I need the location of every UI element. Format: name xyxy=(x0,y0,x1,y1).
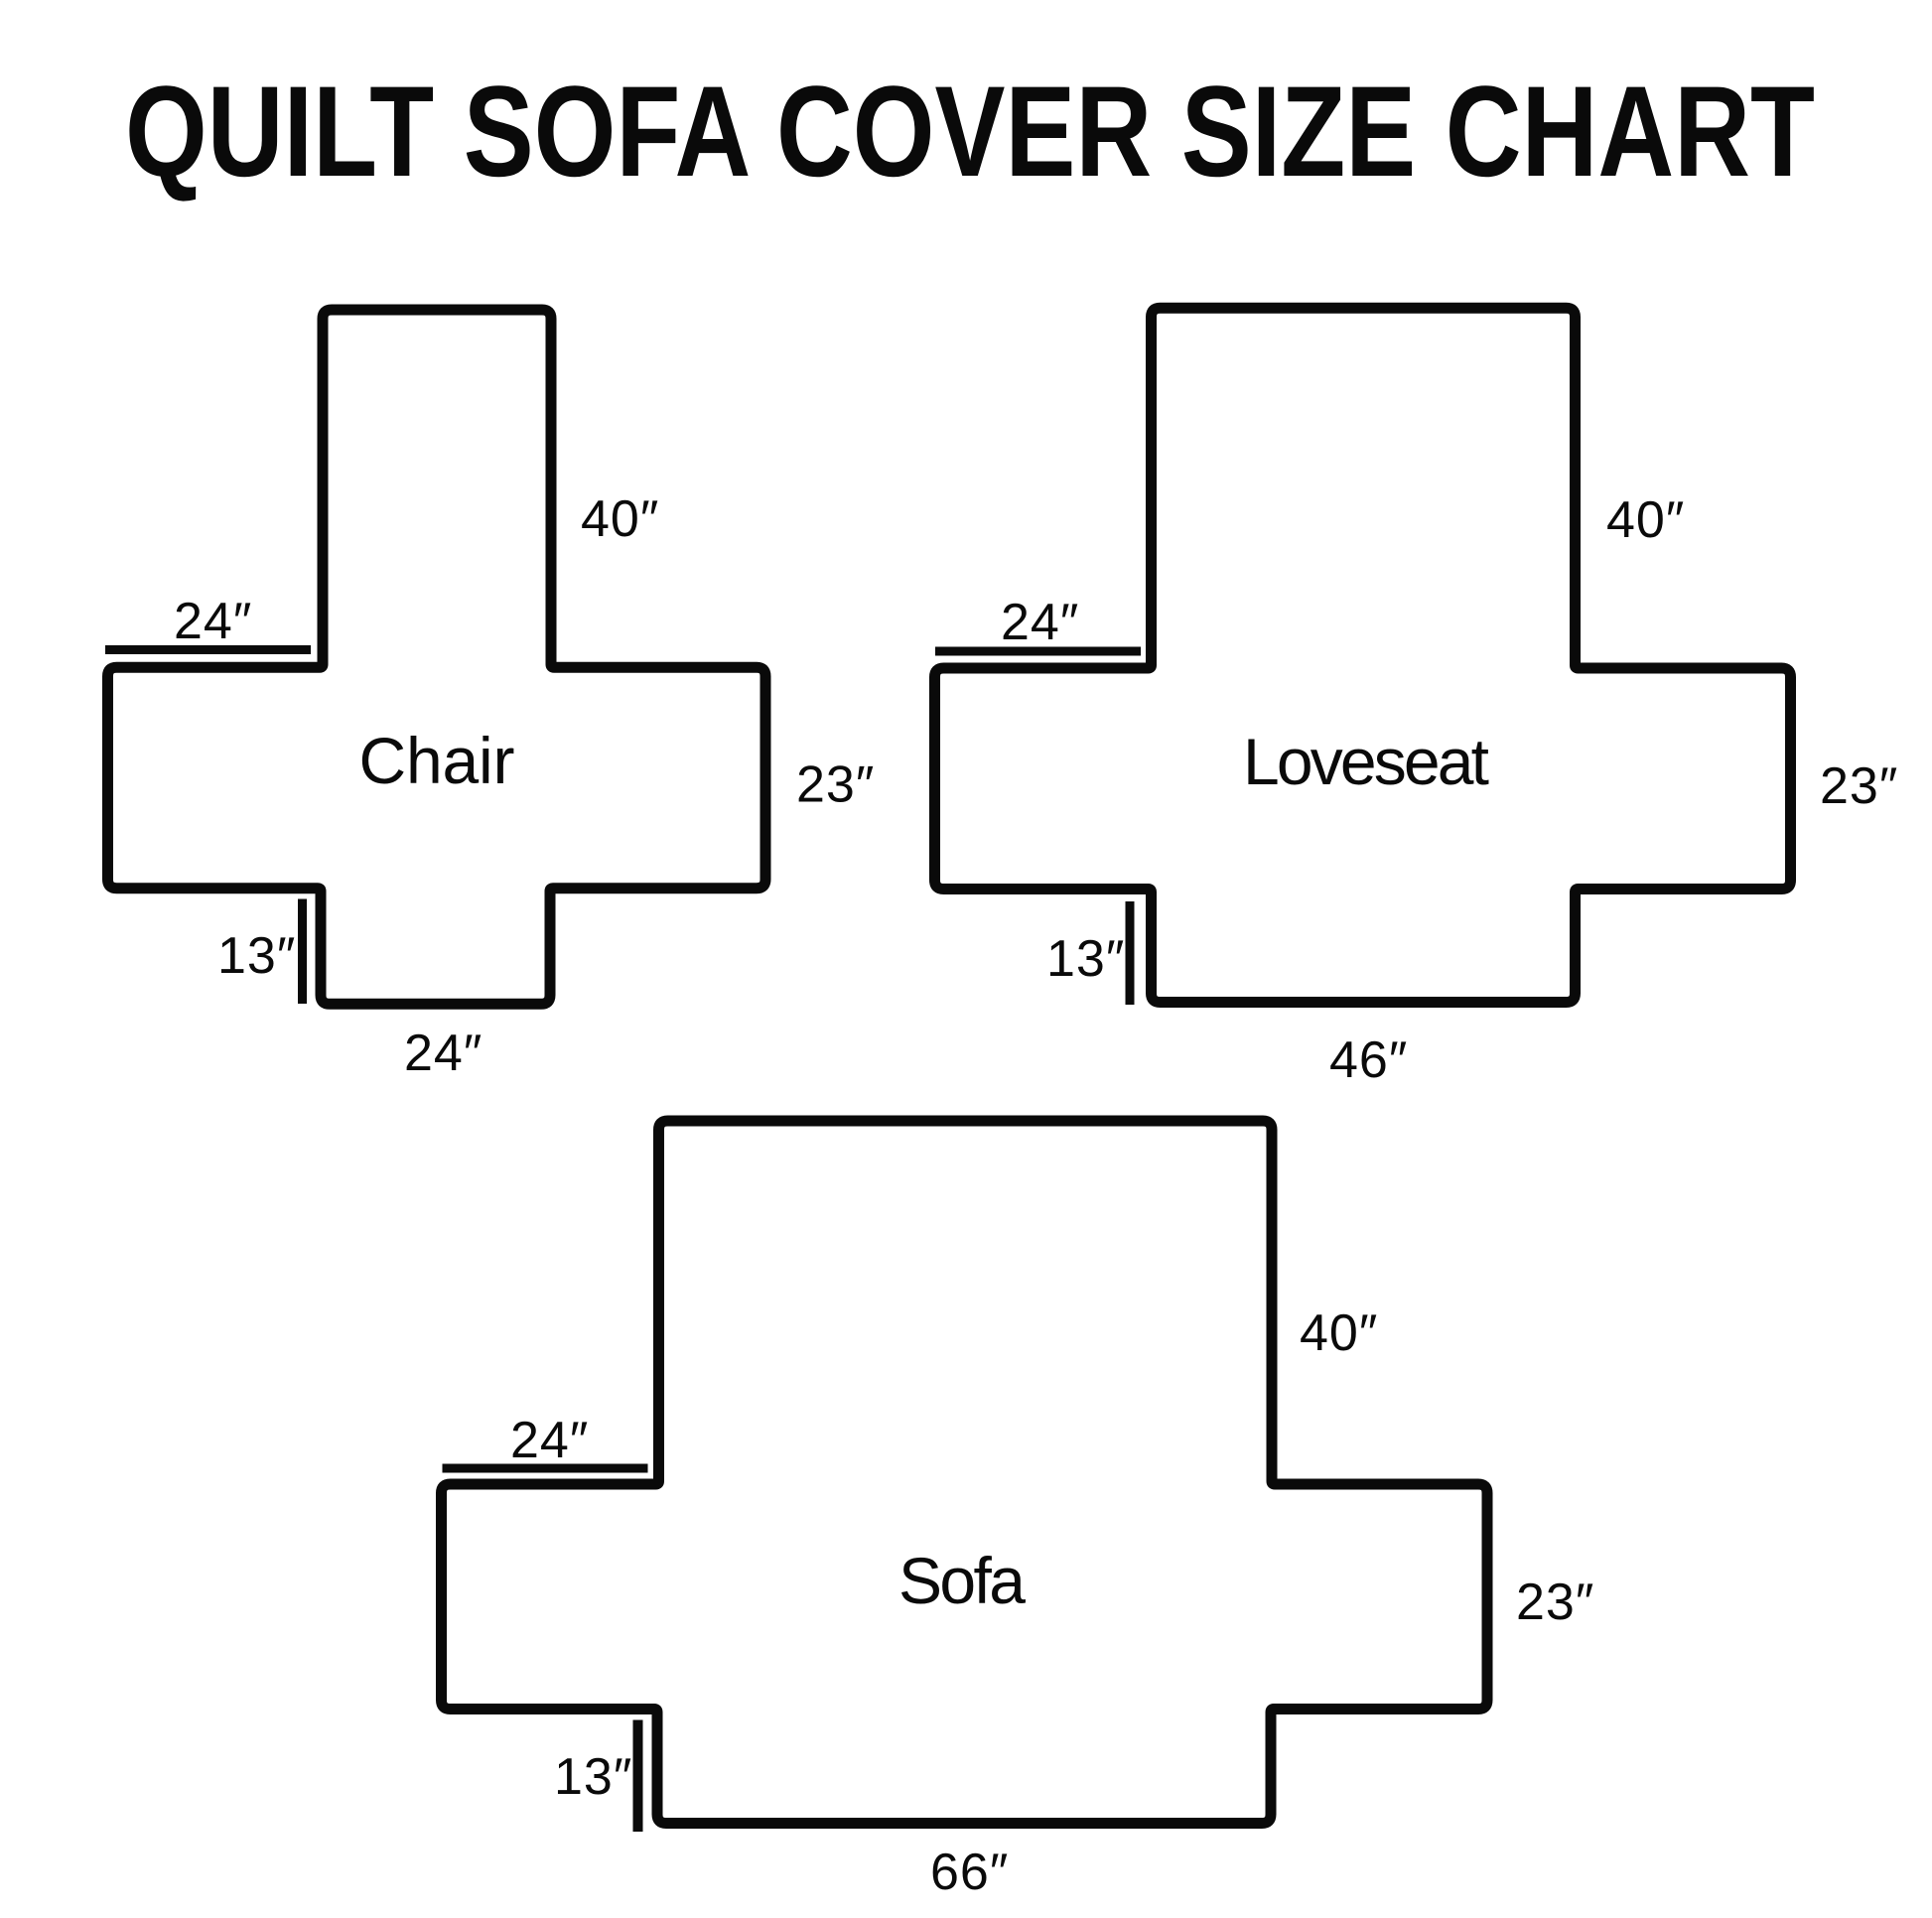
svg-text:QUILT SOFA COVER SIZE CHART: QUILT SOFA COVER SIZE CHART xyxy=(125,60,1815,205)
svg-text:40″: 40″ xyxy=(581,490,659,548)
svg-text:24″: 24″ xyxy=(404,1025,483,1082)
svg-text:40″: 40″ xyxy=(1606,491,1685,549)
svg-text:13″: 13″ xyxy=(217,927,296,985)
svg-text:46″: 46″ xyxy=(1329,1031,1408,1089)
svg-text:13″: 13″ xyxy=(1046,930,1125,988)
svg-text:23″: 23″ xyxy=(796,756,875,814)
svg-text:66″: 66″ xyxy=(930,1844,1009,1901)
svg-text:23″: 23″ xyxy=(1820,757,1898,815)
svg-text:24″: 24″ xyxy=(1001,594,1079,651)
svg-text:24″: 24″ xyxy=(174,593,252,650)
svg-text:Loveseat: Loveseat xyxy=(1243,725,1489,798)
svg-text:Chair: Chair xyxy=(359,724,515,797)
svg-text:40″: 40″ xyxy=(1300,1304,1378,1362)
svg-text:24″: 24″ xyxy=(510,1412,589,1469)
svg-text:13″: 13″ xyxy=(554,1748,632,1806)
svg-text:Sofa: Sofa xyxy=(898,1544,1026,1617)
svg-text:23″: 23″ xyxy=(1516,1574,1594,1631)
